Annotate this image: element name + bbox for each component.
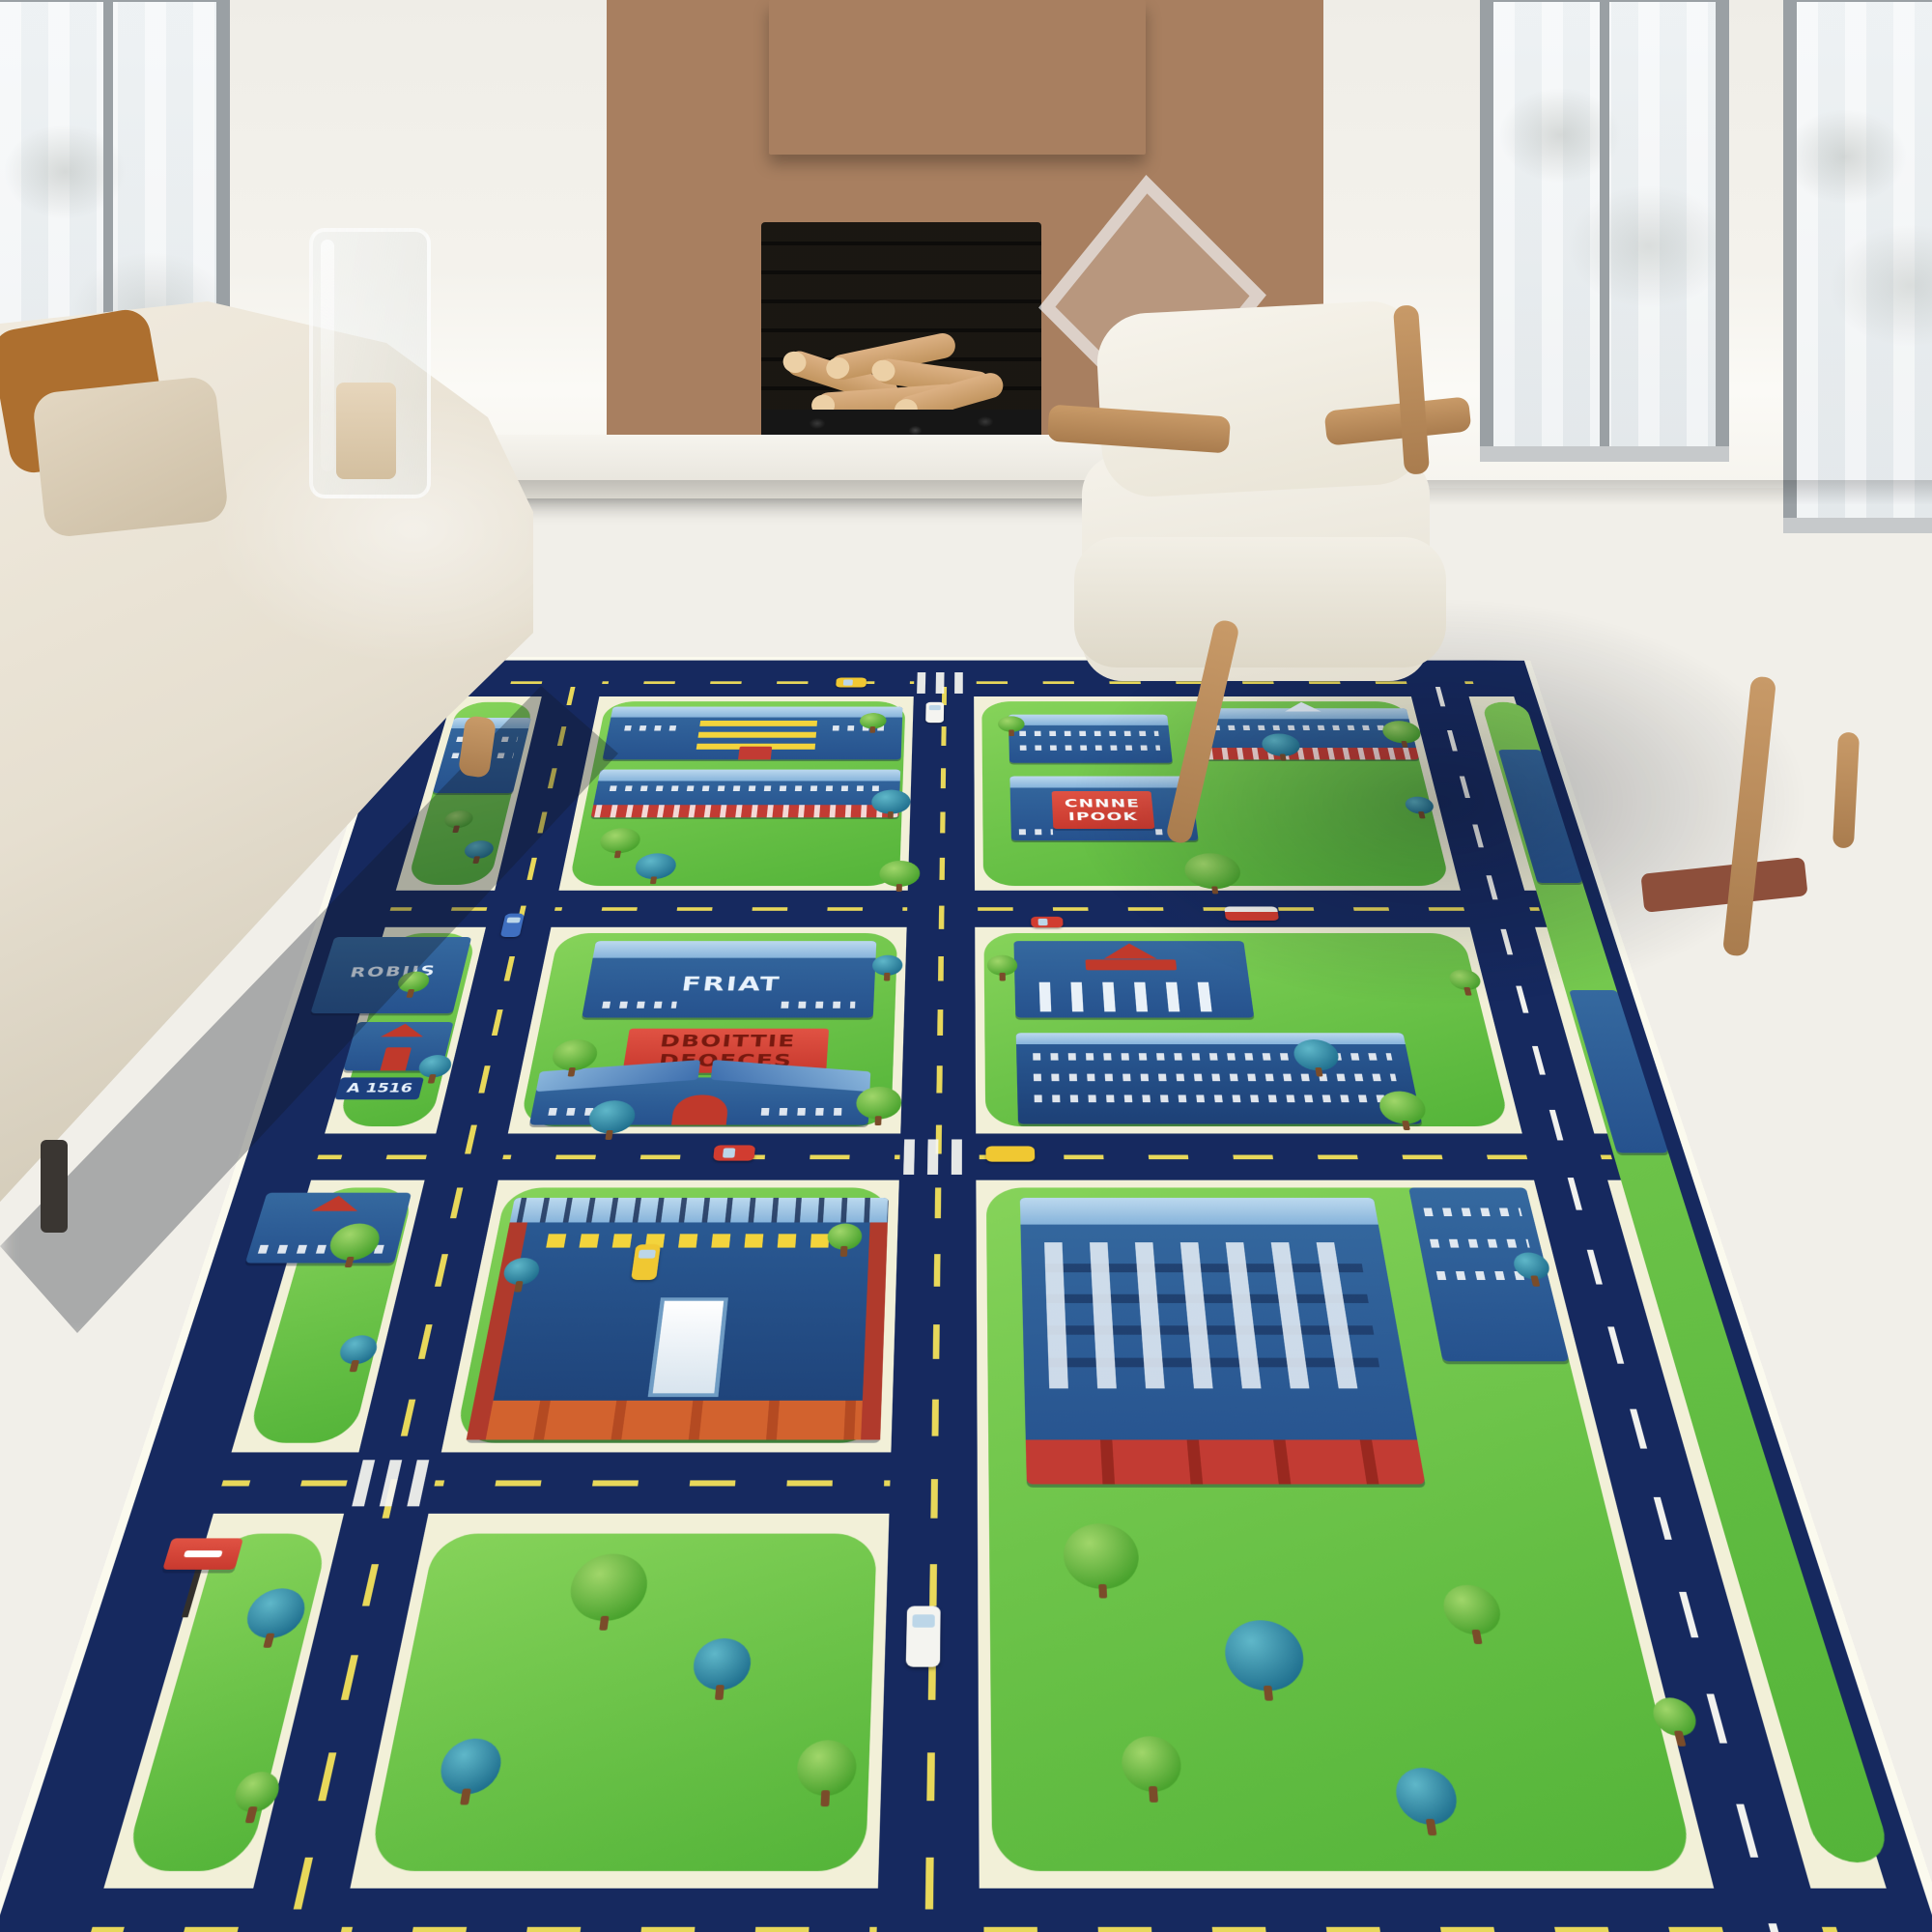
toy-pilaster-red [861, 1222, 888, 1439]
windshield [639, 1250, 656, 1259]
toy-building-bigstore [1020, 1198, 1426, 1485]
toy-taxi [631, 1244, 661, 1280]
toy-columns [1039, 982, 1229, 1012]
road-dashes [924, 687, 947, 1932]
toy-windows [610, 785, 887, 791]
toy-building-factory [603, 707, 903, 760]
toy-truck-white [906, 1606, 941, 1667]
crosswalk [917, 672, 970, 694]
toy-windows [1019, 829, 1053, 835]
toy-building-label: FRIAT [586, 973, 875, 995]
toy-roof [611, 707, 902, 718]
toy-windows [761, 1108, 852, 1116]
tree [856, 1087, 902, 1120]
toy-bank-sign [1085, 959, 1177, 970]
toy-window-grid [1044, 1242, 1383, 1388]
toy-van-white [925, 702, 944, 723]
toy-taxi [836, 678, 867, 688]
windshield [912, 1614, 934, 1627]
toy-base-red [591, 805, 899, 817]
toy-roof [598, 770, 900, 781]
toy-cornice-sign [510, 1198, 889, 1223]
abstract-art-canvas [769, 0, 1146, 155]
toy-bank-pediment [1102, 944, 1156, 959]
fireplace-firebox [761, 222, 1041, 444]
tree [871, 790, 911, 814]
toy-car-red [713, 1145, 755, 1160]
throw-pillow-beige [32, 375, 230, 538]
toy-building-friat: FRIAT [582, 941, 876, 1017]
toy-house-red-gable [245, 1193, 412, 1264]
armchair-back-cushion [1094, 298, 1427, 498]
right-window-1 [1480, 0, 1729, 460]
toy-building-institute [1016, 1033, 1422, 1123]
toy-bus-yellow [985, 1146, 1035, 1161]
toy-door-white [647, 1297, 727, 1397]
road-dashes [203, 1480, 920, 1486]
toy-door-red [380, 1047, 412, 1070]
toy-windows [624, 725, 684, 730]
toy-roof [593, 941, 877, 958]
toy-windows [1424, 1208, 1522, 1217]
toy-red-gable [381, 1024, 427, 1037]
toy-windows [781, 1002, 855, 1009]
toy-building-palace [467, 1198, 889, 1440]
crosswalk [903, 1139, 971, 1175]
toy-roof [1020, 1198, 1378, 1225]
tree [987, 955, 1018, 976]
toy-windows [602, 1002, 677, 1009]
armchair-seat-cushion [1074, 537, 1446, 668]
toy-roof [1016, 1033, 1406, 1044]
toy-road-h4 [149, 1452, 966, 1513]
toy-plaque: A 1516 [334, 1077, 424, 1099]
toy-windows [1430, 1239, 1530, 1248]
tree [998, 716, 1025, 731]
toy-shops-red [1026, 1439, 1426, 1484]
glass-highlight [321, 240, 334, 471]
toy-shops-orange [467, 1401, 882, 1440]
right-window-2 [1783, 0, 1932, 531]
windshield [843, 679, 853, 685]
toy-windows-yellow [546, 1234, 846, 1247]
windshield [506, 918, 521, 923]
windshield [929, 705, 941, 710]
toy-car-sign [162, 1538, 243, 1569]
crosswalk [352, 1460, 434, 1506]
windshield [1038, 919, 1048, 925]
window-sill [1480, 446, 1729, 462]
toy-windows [1035, 1094, 1402, 1102]
living-room-photo: FRIAT DBOITTIE DFOECES [0, 0, 1932, 1932]
car-glyph [184, 1550, 223, 1557]
window-mullion [1600, 2, 1609, 446]
toy-entrance-red-arch [671, 1094, 729, 1124]
toy-windows [1034, 1074, 1397, 1082]
toy-red-gable [311, 1196, 361, 1211]
candle [336, 383, 396, 479]
windshield [723, 1148, 735, 1157]
toy-door-red [738, 747, 772, 760]
sofa-leg-dark [41, 1140, 68, 1233]
toy-building-mansion [529, 1077, 870, 1124]
toy-building-longhall [591, 770, 901, 818]
toy-car-red [1031, 917, 1064, 927]
billboard-text-line1: DBOITTIE [626, 1031, 829, 1050]
tree [872, 955, 903, 976]
